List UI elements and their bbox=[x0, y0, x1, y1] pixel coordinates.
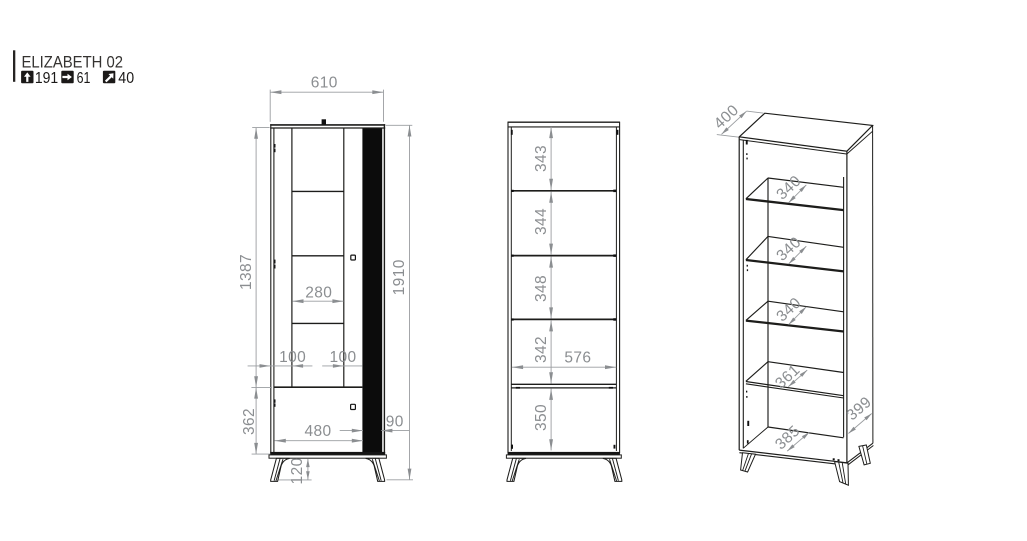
svg-text:362: 362 bbox=[241, 408, 258, 435]
svg-text:350: 350 bbox=[533, 404, 550, 431]
svg-text:400: 400 bbox=[711, 102, 742, 133]
svg-text:399: 399 bbox=[844, 394, 876, 425]
svg-text:348: 348 bbox=[533, 275, 550, 302]
svg-text:120: 120 bbox=[289, 457, 306, 484]
svg-text:480: 480 bbox=[304, 423, 331, 440]
svg-text:1910: 1910 bbox=[391, 259, 408, 295]
svg-text:280: 280 bbox=[305, 284, 332, 301]
svg-text:40: 40 bbox=[118, 70, 134, 87]
svg-text:344: 344 bbox=[533, 208, 550, 235]
svg-text:343: 343 bbox=[533, 145, 550, 172]
svg-text:ELIZABETH 02: ELIZABETH 02 bbox=[22, 52, 124, 71]
svg-text:385: 385 bbox=[772, 422, 803, 453]
svg-text:191: 191 bbox=[35, 70, 58, 87]
svg-text:340: 340 bbox=[773, 173, 804, 204]
svg-text:576: 576 bbox=[564, 349, 591, 366]
svg-text:61: 61 bbox=[77, 70, 91, 87]
svg-text:342: 342 bbox=[533, 336, 550, 363]
svg-text:1387: 1387 bbox=[238, 254, 255, 290]
svg-text:100: 100 bbox=[329, 349, 356, 366]
svg-text:610: 610 bbox=[311, 75, 338, 92]
svg-text:340: 340 bbox=[773, 294, 804, 325]
svg-text:90: 90 bbox=[386, 414, 404, 431]
svg-text:340: 340 bbox=[773, 234, 804, 265]
svg-text:100: 100 bbox=[279, 349, 306, 366]
